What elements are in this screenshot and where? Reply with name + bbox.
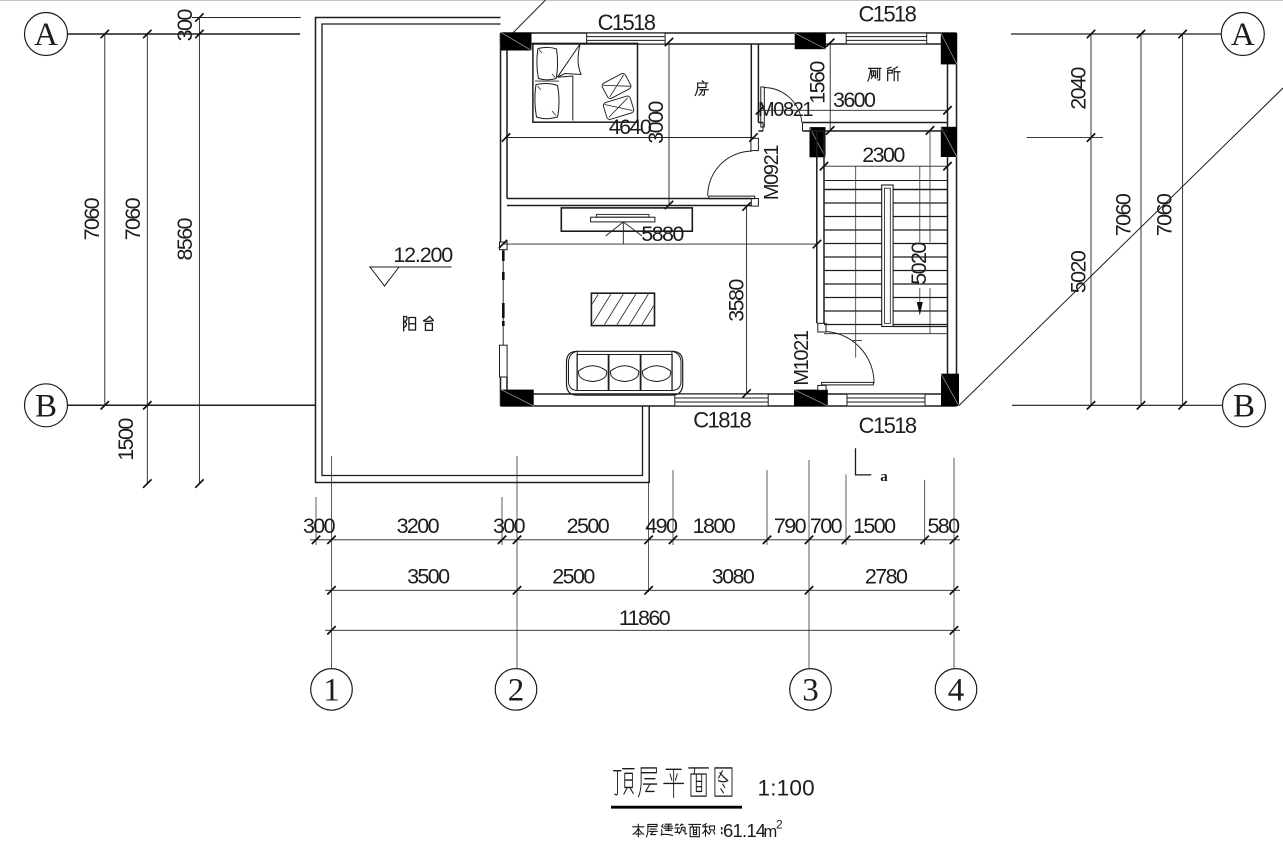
svg-text:A: A [1231, 17, 1255, 53]
svg-text:C1818: C1818 [693, 408, 751, 433]
svg-text:1800: 1800 [693, 514, 736, 538]
svg-text:2040: 2040 [1067, 67, 1091, 110]
svg-text:490: 490 [645, 514, 678, 538]
svg-text:3580: 3580 [725, 279, 749, 322]
svg-text:7060: 7060 [80, 197, 104, 240]
svg-text:3500: 3500 [407, 565, 450, 589]
svg-text:M1021: M1021 [791, 330, 813, 385]
svg-text:700: 700 [810, 514, 843, 538]
svg-text:5020: 5020 [1067, 250, 1091, 293]
svg-text:C1518: C1518 [859, 413, 917, 438]
svg-text:3600: 3600 [833, 88, 876, 112]
svg-text:3: 3 [802, 672, 819, 708]
svg-text:7060: 7060 [1153, 193, 1177, 236]
svg-text:1500: 1500 [853, 514, 896, 538]
svg-text:5020: 5020 [907, 242, 931, 285]
svg-text:B: B [35, 388, 57, 424]
svg-text:300: 300 [173, 9, 197, 42]
svg-text:8560: 8560 [173, 217, 197, 260]
svg-text:1560: 1560 [806, 61, 830, 104]
svg-text:790: 790 [774, 514, 807, 538]
svg-text:300: 300 [493, 514, 526, 538]
svg-text:C1518: C1518 [598, 10, 656, 35]
svg-text:a: a [880, 469, 888, 485]
svg-text:7060: 7060 [121, 197, 145, 240]
svg-text:61.14: 61.14 [723, 820, 766, 841]
svg-text:2: 2 [776, 818, 783, 832]
svg-text:3200: 3200 [397, 514, 440, 538]
svg-text:3000: 3000 [644, 101, 668, 144]
svg-text:1500: 1500 [114, 418, 138, 461]
svg-text:2: 2 [508, 672, 525, 708]
svg-text:580: 580 [927, 514, 960, 538]
svg-text:4: 4 [948, 672, 965, 708]
svg-text:11860: 11860 [619, 606, 671, 630]
svg-text:2300: 2300 [862, 143, 905, 167]
svg-text:5880: 5880 [641, 222, 684, 246]
svg-text:M0921: M0921 [761, 145, 783, 200]
svg-text:12.200: 12.200 [393, 243, 453, 267]
svg-text:2780: 2780 [865, 565, 908, 589]
svg-text:2500: 2500 [552, 565, 595, 589]
svg-text:B: B [1233, 388, 1255, 424]
svg-text:1:100: 1:100 [758, 776, 815, 801]
svg-text:A: A [34, 17, 58, 53]
svg-text:300: 300 [303, 514, 336, 538]
svg-text:1: 1 [323, 672, 340, 708]
svg-text:7060: 7060 [1112, 193, 1136, 236]
svg-text:3080: 3080 [712, 565, 755, 589]
svg-text:C1518: C1518 [858, 2, 916, 27]
svg-text:2500: 2500 [567, 514, 610, 538]
